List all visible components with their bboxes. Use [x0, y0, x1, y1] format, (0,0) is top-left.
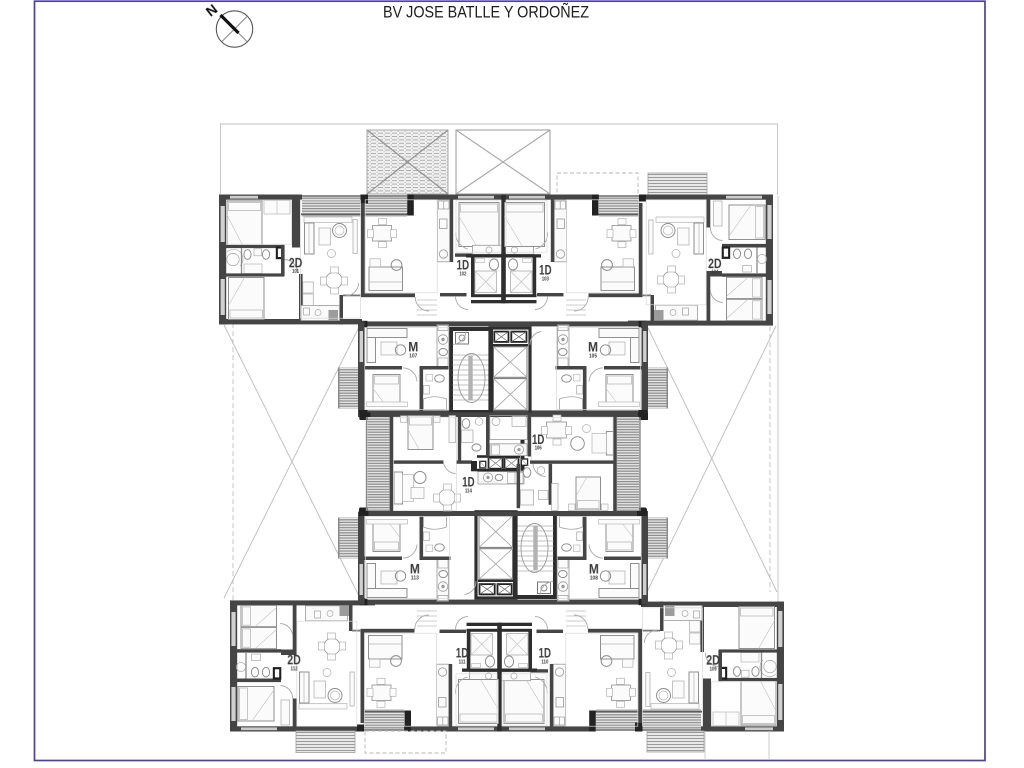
svg-text:110: 110 — [541, 660, 548, 666]
svg-text:111: 111 — [459, 659, 466, 665]
svg-text:BV JOSE BATLLE Y ORDOÑEZ: BV JOSE BATLLE Y ORDOÑEZ — [383, 1, 589, 21]
svg-text:M: M — [410, 562, 420, 577]
svg-text:2D: 2D — [706, 653, 720, 668]
svg-text:1D: 1D — [462, 475, 475, 490]
svg-text:112: 112 — [291, 666, 298, 672]
svg-text:102: 102 — [459, 271, 466, 277]
svg-text:1D: 1D — [539, 646, 552, 661]
svg-text:M: M — [408, 339, 418, 354]
svg-text:106: 106 — [535, 446, 542, 452]
svg-text:M: M — [589, 562, 599, 577]
svg-text:M: M — [588, 340, 598, 355]
svg-text:114: 114 — [465, 488, 473, 494]
svg-text:109: 109 — [710, 667, 717, 673]
svg-text:1D: 1D — [457, 257, 470, 272]
svg-text:105: 105 — [589, 353, 597, 359]
svg-text:2D: 2D — [287, 652, 301, 667]
svg-text:1D: 1D — [456, 646, 469, 661]
svg-text:101: 101 — [292, 269, 299, 275]
svg-text:1D: 1D — [532, 432, 545, 447]
svg-text:107: 107 — [409, 353, 417, 359]
svg-text:103: 103 — [542, 276, 549, 282]
svg-text:104: 104 — [711, 270, 719, 276]
svg-text:113: 113 — [411, 575, 419, 581]
svg-text:2D: 2D — [708, 256, 722, 271]
svg-text:108: 108 — [590, 576, 598, 582]
svg-text:1D: 1D — [539, 263, 552, 278]
svg-text:2D: 2D — [289, 255, 303, 270]
